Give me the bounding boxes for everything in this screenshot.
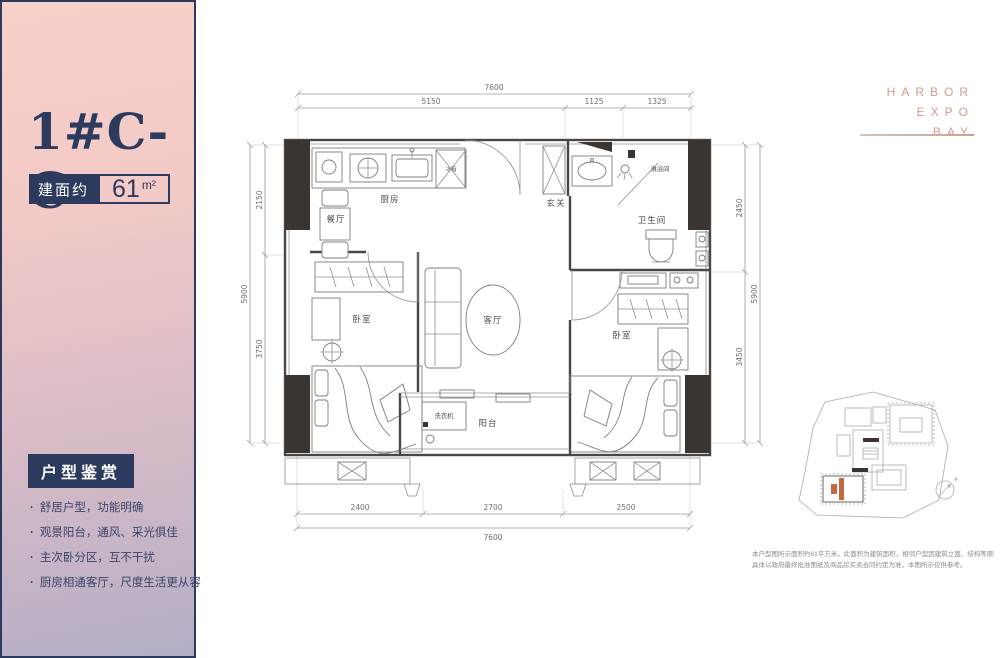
wash-basin-icon bbox=[572, 156, 612, 186]
area-label: 建面约 bbox=[29, 174, 98, 204]
entry: 玄关 bbox=[543, 146, 566, 209]
disclaimer-line: 具体以政府最终批准图纸及商品房买卖合同约定为准，本图所示仅供参考。 bbox=[752, 560, 994, 571]
dim-bottom-seg: 2500 bbox=[616, 503, 635, 512]
brand-word: EXPO bbox=[858, 102, 974, 122]
desk-icon bbox=[658, 328, 688, 370]
info-panel: 1#C-C 建面约 61 m² 户型鉴赏 舒居户型，功能明确 观景阳台，通风、采… bbox=[0, 0, 196, 658]
tv-bench-icon bbox=[620, 273, 666, 288]
dim-top-seg: 1325 bbox=[647, 97, 666, 106]
bed-icon bbox=[570, 376, 680, 452]
drain-funnel bbox=[570, 484, 586, 496]
desk-icon bbox=[312, 298, 340, 340]
area-unit: m² bbox=[142, 176, 156, 191]
section-title: 户型鉴赏 bbox=[28, 454, 134, 488]
dining-chair bbox=[322, 242, 348, 258]
bedroom-right-door-arc bbox=[572, 270, 622, 320]
dim-top-seg: 1125 bbox=[584, 97, 603, 106]
dimension-left: 2150 3750 5900 bbox=[240, 142, 268, 446]
wardrobe-icon bbox=[315, 262, 403, 292]
dim-bottom-seg: 2700 bbox=[483, 503, 502, 512]
dim-top-total: 7600 bbox=[484, 83, 503, 92]
bedroom-right: 卧室 bbox=[570, 273, 698, 452]
feature-list: 舒居户型，功能明确 观景阳台，通风、采光俱佳 主次卧分区，互不干扰 厨房相通客厅… bbox=[30, 496, 201, 596]
dining: 餐厅 bbox=[320, 190, 350, 258]
washing-machine-icon: 洗衣机 bbox=[422, 402, 466, 443]
dining-chair bbox=[322, 190, 348, 206]
dim-right-seg: 3450 bbox=[735, 347, 744, 366]
room-label-bedroom-right: 卧室 bbox=[612, 330, 631, 341]
feature-item: 主次卧分区，互不干扰 bbox=[30, 546, 201, 571]
fridge-label: 冰箱 bbox=[445, 165, 457, 173]
site-buildings bbox=[837, 403, 934, 490]
chair-icon bbox=[660, 348, 684, 372]
cooktop-icon bbox=[350, 154, 386, 182]
room-label-entry: 玄关 bbox=[546, 198, 565, 209]
wardrobe-icon bbox=[618, 294, 688, 324]
disclaimer-line: 本户型图所示面积约61平方米，此面积为建筑面积，相邻户型因建筑立面、结构等原因局… bbox=[752, 549, 994, 560]
area-value-box: 61 m² bbox=[98, 174, 170, 204]
drain-funnel bbox=[404, 484, 420, 496]
area-badge: 建面约 61 m² bbox=[29, 174, 170, 204]
brand-logo: HARBOR EXPO BAY bbox=[858, 82, 974, 142]
room-label-shower: 淋浴间 bbox=[651, 164, 670, 173]
dim-left-seg: 2150 bbox=[255, 190, 264, 209]
dim-top-seg: 5150 bbox=[421, 97, 440, 106]
room-label-kitchen: 厨房 bbox=[380, 194, 399, 205]
room-label-balcony: 阳台 bbox=[478, 418, 497, 429]
compass-icon bbox=[936, 477, 958, 499]
site-boundary bbox=[799, 392, 948, 518]
dim-left-seg: 3750 bbox=[255, 339, 264, 358]
dim-bottom-seg: 2400 bbox=[350, 503, 369, 512]
kitchen-sink-icon bbox=[392, 148, 432, 181]
toilet-icon bbox=[646, 230, 676, 262]
dimension-top: 7600 5150 1125 1325 bbox=[295, 83, 694, 111]
room-label-bath: 卫生间 bbox=[638, 215, 667, 226]
highlighted-building bbox=[821, 474, 865, 504]
bedroom-left: 卧室 bbox=[312, 262, 422, 453]
brand-underline bbox=[860, 134, 974, 136]
floor-plan: 7600 5150 1125 1325 2400 2700 2500 7600 … bbox=[240, 70, 780, 570]
bed-icon bbox=[312, 366, 422, 453]
dim-right-seg: 2450 bbox=[735, 198, 744, 217]
shower-head-icon bbox=[617, 165, 632, 180]
disclaimer: 本户型图所示面积约61平方米，此面积为建筑面积，相邻户型因建筑立面、结构等原因局… bbox=[752, 549, 994, 571]
front-door-arc bbox=[465, 140, 520, 195]
room-label-dining: 餐厅 bbox=[326, 215, 345, 225]
dimension-right: 2450 3450 5900 bbox=[735, 142, 763, 446]
ac-platforms bbox=[285, 458, 700, 496]
dimension-bottom: 2400 2700 2500 7600 bbox=[294, 503, 693, 542]
bathroom: 淋浴间 卫生间 bbox=[572, 156, 708, 266]
brand-word: HARBOR bbox=[858, 82, 974, 102]
washer-label: 洗衣机 bbox=[435, 411, 455, 420]
living-room: 客厅 bbox=[425, 268, 520, 368]
floorplan-brochure-page: { "brand": { "words": ["HARBOR", "EXPO",… bbox=[0, 0, 1000, 658]
dim-bottom-total: 7600 bbox=[483, 533, 502, 542]
brand-word: BAY bbox=[858, 122, 974, 142]
feature-item: 舒居户型，功能明确 bbox=[30, 496, 201, 521]
area-number: 61 bbox=[112, 176, 140, 203]
sofa-icon bbox=[425, 268, 461, 368]
balcony: 洗衣机 阳台 bbox=[400, 390, 570, 455]
room-label-bedroom-left: 卧室 bbox=[352, 314, 371, 325]
feature-item: 观景阳台，通风、采光俱佳 bbox=[30, 521, 201, 546]
room-label-living: 客厅 bbox=[483, 315, 502, 326]
fridge-icon: 冰箱 bbox=[436, 150, 466, 188]
feature-item: 厨房相通客厅，尺度生活更从容 bbox=[30, 571, 201, 596]
dim-left-total: 5900 bbox=[240, 284, 249, 303]
dim-right-total: 5900 bbox=[750, 284, 759, 303]
sliding-door-panel bbox=[496, 394, 530, 402]
chair-icon bbox=[320, 340, 344, 364]
site-plan bbox=[795, 388, 975, 533]
